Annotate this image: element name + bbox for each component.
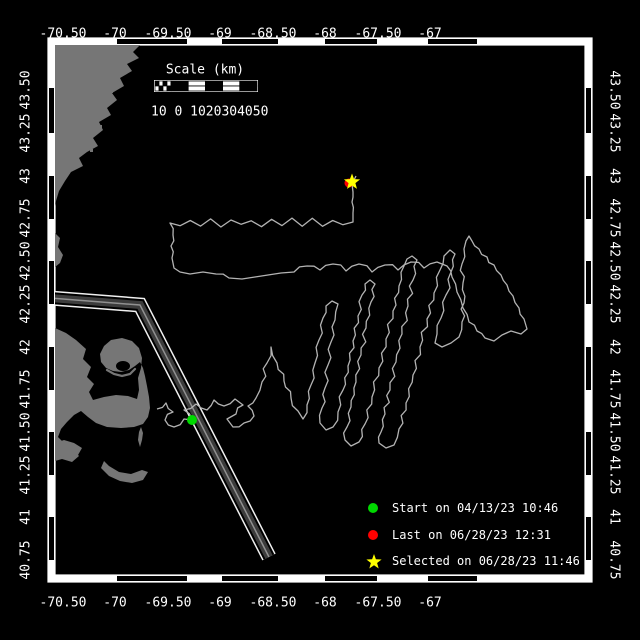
axis-label-lon: -70.50 [40,596,87,611]
axis-label-lat: 41.50 [19,412,34,451]
axis-label-lon: -67.50 [355,27,402,42]
axis-label-lat: 41.25 [607,455,622,494]
harbor-notch [116,361,130,371]
axis-label-lon: -69 [208,596,231,611]
axis-label-lat: 42.75 [607,198,622,237]
axis-label-lat: 42.75 [19,198,34,237]
track-map [0,0,640,640]
axis-label-lon: -70.50 [40,27,87,42]
axis-label-lat: 42.25 [19,284,34,323]
axis-label-lat: 42 [19,339,34,355]
legend-marker-1 [368,530,378,540]
islet [124,58,127,61]
axis-label-lon: -67.50 [355,596,402,611]
axis-label-lat: 43 [607,168,622,184]
scale-bar [154,80,258,92]
axis-label-lat: 40.75 [19,540,34,579]
axis-label-lat: 42.50 [19,241,34,280]
islet [90,149,93,152]
axis-label-lat: 41 [19,509,34,525]
islet [110,90,113,93]
scale-tick-labels: 10 0 1020304050 [151,105,268,120]
axis-label-lat: 41.50 [607,412,622,451]
axis-label-lon: -67 [418,596,441,611]
axis-label-lon: -67 [418,27,441,42]
axis-label-lat: 42.25 [607,284,622,323]
axis-label-lat: 42 [607,339,622,355]
start-marker[interactable] [187,415,197,425]
axis-label-lat: 41.75 [19,369,34,408]
islet [99,125,102,128]
axis-label-lon: -70 [103,596,126,611]
legend-label-1: Last on 06/28/23 12:31 [392,528,551,542]
scale-title: Scale (km) [166,63,244,78]
axis-label-lat: 43.25 [607,113,622,152]
axis-label-lon: -69 [208,27,231,42]
axis-label-lon: -68 [313,596,336,611]
axis-label-lon: -68.50 [250,596,297,611]
legend-label-0: Start on 04/13/23 10:46 [392,501,558,515]
axis-label-lat: 43 [19,168,34,184]
axis-label-lon: -70 [103,27,126,42]
axis-label-lat: 43.50 [19,70,34,109]
axis-label-lon: -68 [313,27,336,42]
axis-label-lat: 43.25 [19,113,34,152]
axis-label-lon: -68.50 [250,27,297,42]
legend-label-2: Selected on 06/28/23 11:46 [392,554,580,568]
axis-label-lon: -69.50 [145,596,192,611]
legend-marker-0 [368,503,378,513]
glider-track-viewer: { "colors": { "background": "#000000", "… [0,0,640,640]
axis-label-lon: -69.50 [145,27,192,42]
axis-label-lat: 40.75 [607,540,622,579]
axis-label-lat: 41 [607,509,622,525]
axis-label-lat: 42.50 [607,241,622,280]
axis-label-lat: 43.50 [607,70,622,109]
axis-label-lat: 41.75 [607,369,622,408]
axis-label-lat: 41.25 [19,455,34,494]
